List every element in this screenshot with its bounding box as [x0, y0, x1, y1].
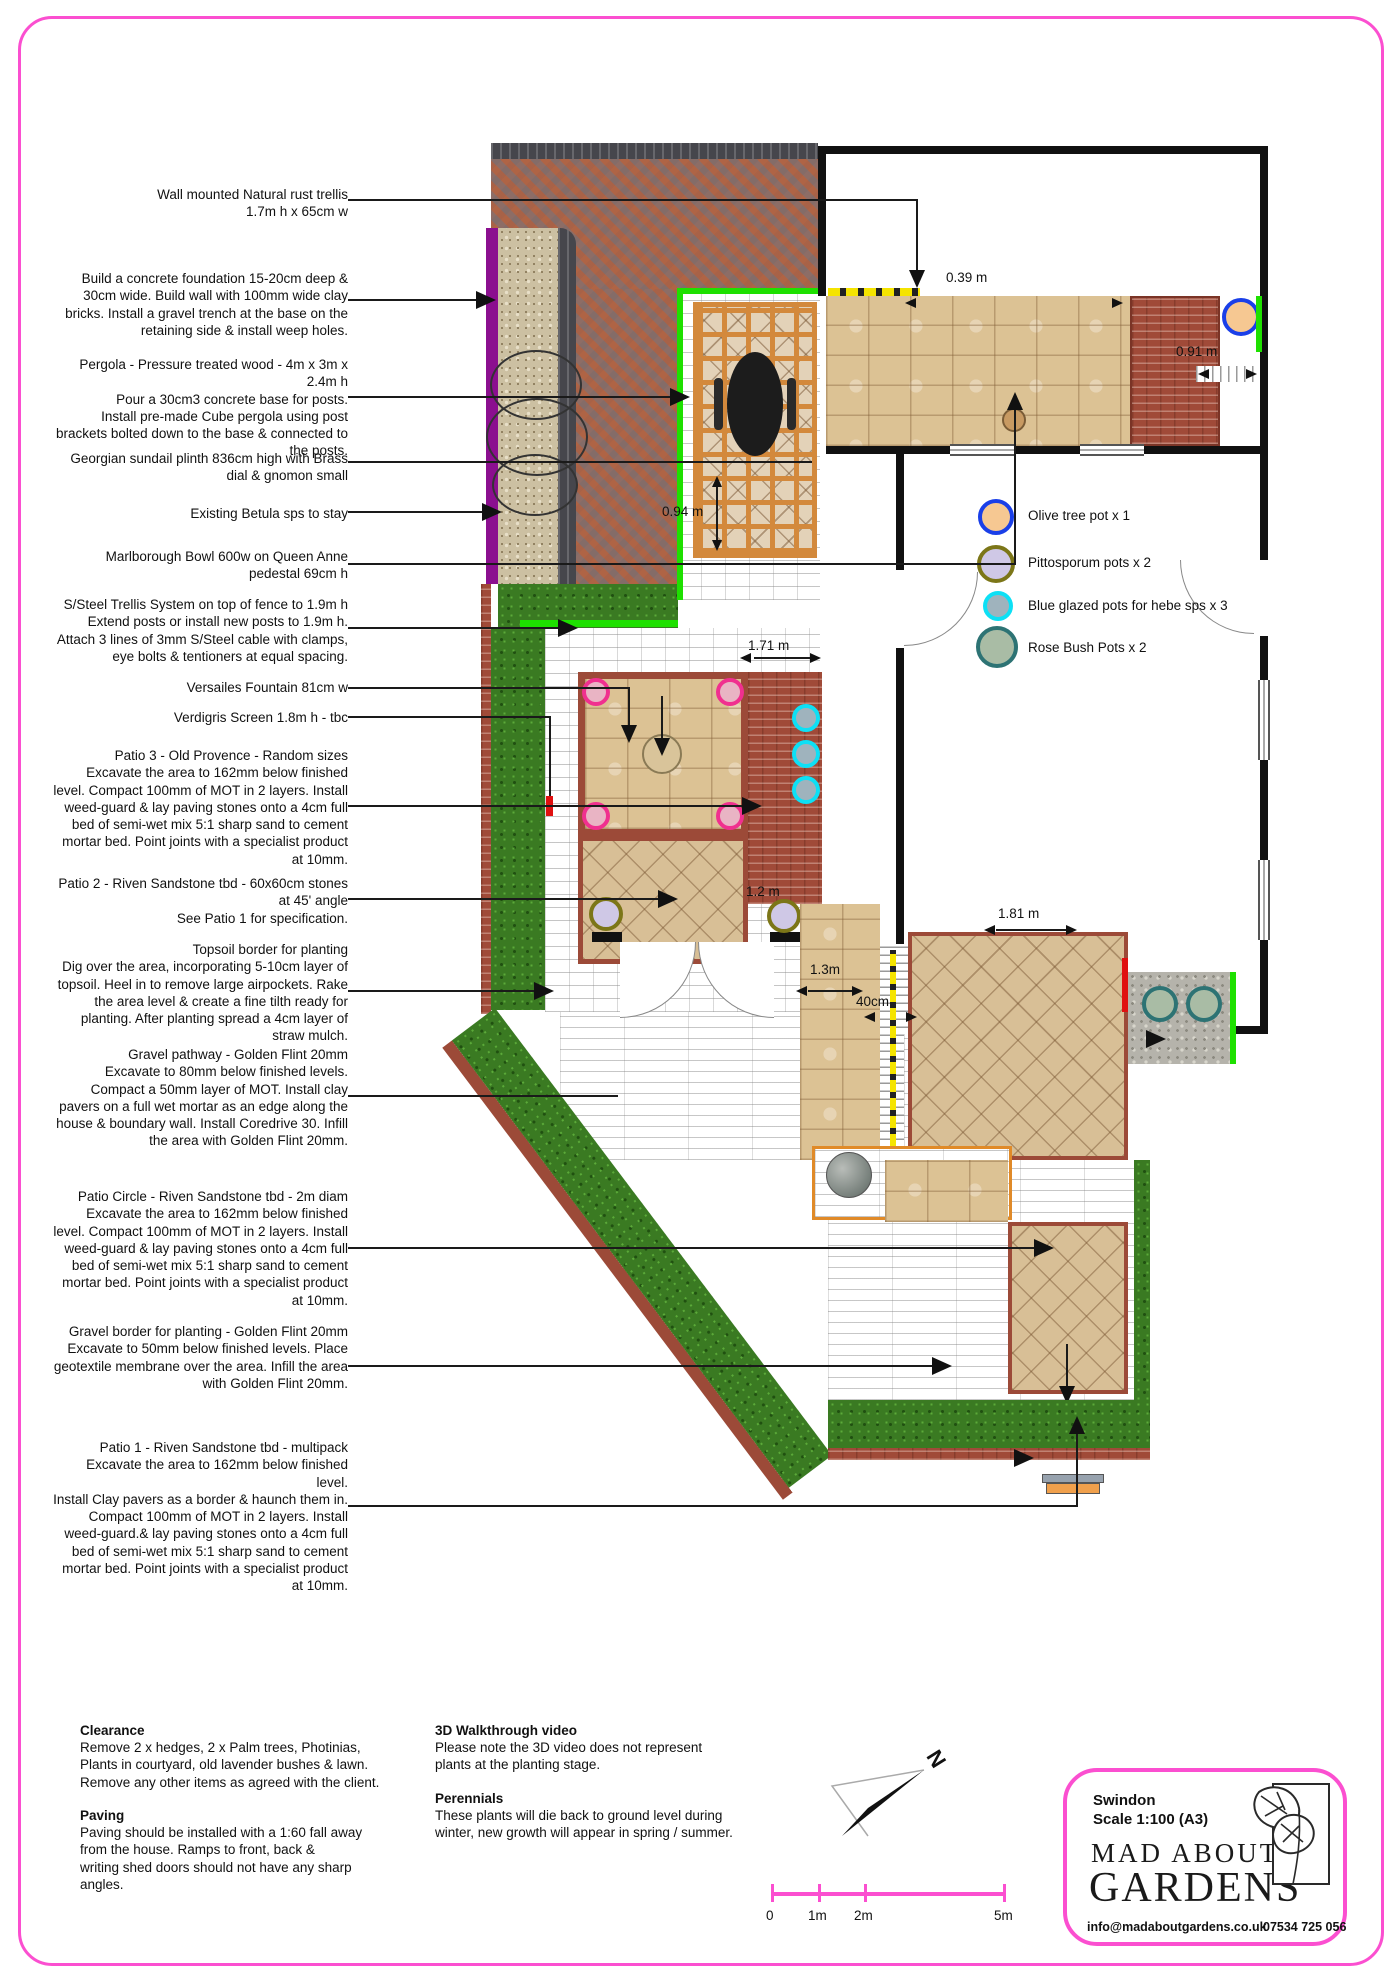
dim-line — [754, 657, 810, 659]
dim-line — [996, 929, 1068, 931]
rose-bush-pot-icon — [976, 626, 1018, 668]
yellow-marker-line — [828, 288, 920, 296]
annotation-marlborough-bowl: Marlborough Bowl 600w on Queen Anne pede… — [52, 548, 348, 583]
garage-wall-left — [818, 146, 826, 296]
note-title: Clearance — [80, 1722, 390, 1739]
hebe-pot — [792, 776, 820, 804]
dim-arrow-left-icon — [905, 298, 916, 308]
patio-circle-area — [908, 932, 1128, 1160]
legend-label: Pittosporum pots x 2 — [1028, 555, 1151, 570]
annotation-steel-trellis: S/Steel Trellis System on top of fence t… — [52, 596, 348, 665]
leader-line — [1066, 1344, 1068, 1388]
leader-line — [1076, 1434, 1078, 1505]
window-icon — [1258, 860, 1270, 940]
dimension-label: 1.3m — [810, 962, 840, 977]
courtyard-patio — [826, 296, 1130, 446]
betula-tree-icon — [492, 454, 578, 516]
annotation-patio-2: Patio 2 - Riven Sandstone tbd - 60x60cm … — [52, 875, 348, 927]
scale-bar — [773, 1892, 1005, 1896]
scale-label: 1m — [808, 1908, 827, 1923]
annotation-wall-trellis: Wall mounted Natural rust trellis 1.7m h… — [52, 186, 348, 221]
sandstone-link — [885, 1160, 1008, 1222]
steel-trellis-line — [520, 620, 678, 627]
dim-arrow-left-icon — [1198, 369, 1209, 379]
arrow-right-icon — [932, 1357, 952, 1375]
note-body: Please note the 3D video does not repres… — [435, 1740, 702, 1772]
arrow-right-icon — [658, 890, 678, 908]
leader-line — [348, 627, 560, 629]
leader-line — [348, 299, 478, 301]
courtyard-wall-bottom — [826, 446, 1268, 454]
leader-line — [549, 716, 551, 798]
arrow-right-icon — [1034, 1239, 1054, 1257]
leader-line — [348, 563, 1016, 565]
yellow-marker-line-v — [890, 950, 896, 1146]
project-location: Swindon — [1093, 1792, 1156, 1809]
arrow-right-icon — [482, 503, 502, 521]
retaining-wall — [486, 228, 498, 584]
contact-phone: 07534 725 056 — [1263, 1920, 1346, 1934]
shed-ramp — [1046, 1483, 1100, 1494]
leader-line — [348, 990, 536, 992]
note-perennials: PerennialsThese plants will die back to … — [435, 1773, 745, 1842]
dim-arrow-down-icon — [712, 540, 722, 551]
door-wall-stub — [770, 932, 804, 942]
dimension-label: 1.71 m — [748, 638, 789, 653]
hebe-pot — [792, 740, 820, 768]
window-icon — [1258, 680, 1270, 760]
garage-wall-top — [818, 146, 1268, 154]
arrow-right-icon — [558, 619, 578, 637]
note-paving: PavingPaving should be installed with a … — [80, 1790, 390, 1893]
fountain-pot — [582, 678, 610, 706]
dim-arrow-up-icon — [712, 476, 722, 487]
boundary-brick-edge-bottom — [828, 1448, 1150, 1460]
note-body: Paving should be installed with a 1:60 f… — [80, 1825, 362, 1891]
leader-line — [348, 199, 918, 201]
annotation-sundial: Georgian sundail plinth 836cm high with … — [52, 450, 348, 485]
legend-label: Olive tree pot x 1 — [1028, 508, 1130, 523]
annotation-gravel-border: Gravel border for planting - Golden Flin… — [52, 1323, 348, 1392]
annotation-gravel-pathway: Gravel pathway - Golden Flint 20mm Excav… — [52, 1046, 348, 1150]
annotation-pergola: Pergola - Pressure treated wood - 4m x 3… — [52, 356, 348, 460]
contact-email: info@madaboutgardens.co.uk — [1087, 1920, 1267, 1934]
dim-arrow-right-icon — [810, 653, 821, 663]
pittosporum-pot — [589, 897, 623, 931]
pergola-green-edge-v — [677, 288, 683, 600]
arrow-down-icon — [654, 738, 670, 756]
dim-arrow-left-icon — [740, 653, 751, 663]
shed-threshold — [1042, 1474, 1104, 1483]
annotation-verdigris-screen: Verdigris Screen 1.8m h - tbc — [52, 709, 348, 726]
leader-line — [348, 1247, 1036, 1249]
hebe-pot-icon — [983, 591, 1013, 621]
leader-line — [348, 1505, 1078, 1507]
monstera-logo-icon — [1247, 1780, 1333, 1892]
note-title: Perennials — [435, 1790, 745, 1807]
annotation-patio-3: Patio 3 - Old Provence - Random sizes Ex… — [52, 747, 348, 868]
door-opening — [896, 570, 904, 648]
leader-line — [628, 687, 630, 727]
sundial-leader — [661, 696, 663, 738]
note-body: These plants will die back to ground lev… — [435, 1808, 733, 1840]
leader-line — [1014, 410, 1016, 565]
scale-tick — [864, 1884, 867, 1902]
arrow-up-icon — [1007, 392, 1023, 410]
dimension-label: 0.91 m — [1176, 344, 1217, 359]
dimension-label: 0.39 m — [946, 270, 987, 285]
hedge-bottom-strip — [828, 1400, 1150, 1448]
scale-label: 2m — [854, 1908, 873, 1923]
driveway-border-course — [491, 143, 818, 159]
window-icon — [950, 444, 1014, 456]
north-arrow-icon — [828, 1748, 938, 1843]
bench-icon — [787, 378, 796, 430]
legend-label: Blue glazed pots for hebe sps x 3 — [1028, 598, 1228, 613]
title-block: Swindon Scale 1:100 (A3) MAD ABOUT GARDE… — [1063, 1768, 1347, 1946]
leader-line — [348, 396, 672, 398]
green-marker-line — [1256, 296, 1262, 352]
scale-tick — [818, 1884, 821, 1902]
leader-line — [348, 805, 744, 807]
scale-label: 0 — [766, 1908, 774, 1923]
leader-line — [348, 687, 630, 689]
arrow-right-icon — [1146, 1030, 1166, 1048]
leader-line — [348, 898, 660, 900]
arrow-right-icon — [670, 388, 690, 406]
legend-label: Rose Bush Pots x 2 — [1028, 640, 1147, 655]
garden-plan-sheet: Olive tree pot x 1 Pittosporum pots x 2 … — [0, 0, 1400, 1980]
dim-arrow-right-icon — [1066, 925, 1077, 935]
door-wall-stub — [592, 932, 622, 942]
hedge-right-strip — [1134, 1160, 1150, 1400]
annotation-patio-circle: Patio Circle - Riven Sandstone tbd - 2m … — [52, 1188, 348, 1309]
leader-line — [348, 1095, 618, 1097]
annotation-topsoil-border: Topsoil border for planting Dig over the… — [52, 941, 348, 1045]
note-title: 3D Walkthrough video — [435, 1722, 745, 1739]
dining-table-icon — [727, 352, 783, 456]
arrow-down-icon — [909, 270, 925, 288]
olive-tree-pot — [1222, 298, 1260, 336]
dim-arrow-right-icon — [1246, 369, 1257, 379]
arrow-right-icon — [534, 982, 554, 1000]
dimension-label: 1.81 m — [998, 906, 1039, 921]
dim-arrow-left-icon — [864, 1012, 875, 1022]
dim-arrow-left-icon — [796, 986, 807, 996]
annotation-patio-1: Patio 1 - Riven Sandstone tbd - multipac… — [52, 1439, 348, 1594]
note-walkthrough: 3D Walkthrough videoPlease note the 3D v… — [435, 1705, 745, 1774]
arrow-right-icon — [1014, 1449, 1034, 1467]
leader-line — [348, 461, 812, 463]
rose-bush-pot — [1186, 986, 1222, 1022]
note-clearance: ClearanceRemove 2 x hedges, 2 x Palm tre… — [80, 1705, 390, 1791]
scale-tick — [771, 1884, 774, 1902]
arrow-right-icon — [476, 291, 496, 309]
boundary-brick-edge — [481, 584, 491, 1014]
arrow-down-icon — [621, 725, 637, 743]
drawing-scale: Scale 1:100 (A3) — [1093, 1811, 1208, 1828]
bench-icon — [714, 378, 723, 430]
dimension-label: 40cm — [856, 994, 889, 1009]
scale-label: 5m — [994, 1908, 1013, 1923]
note-body: Remove 2 x hedges, 2 x Palm trees, Photi… — [80, 1740, 379, 1789]
green-marker-line — [1230, 972, 1236, 1064]
arrow-right-icon — [742, 797, 762, 815]
dim-arrow-left-icon — [984, 925, 995, 935]
dimension-label: 0.94 m — [662, 504, 703, 519]
window-icon — [1080, 444, 1144, 456]
pergola-green-edge-h — [677, 288, 820, 294]
leader-line — [916, 199, 918, 273]
fountain-pot — [716, 678, 744, 706]
dim-line — [808, 990, 854, 992]
arrow-up-icon — [1069, 1416, 1085, 1434]
scale-tick — [1003, 1884, 1006, 1902]
pittosporum-pot — [767, 899, 801, 933]
dim-line — [716, 482, 718, 542]
note-title: Paving — [80, 1807, 390, 1824]
dim-arrow-right-icon — [1112, 298, 1123, 308]
annotation-versailles-fountain: Versailes Fountain 81cm w — [52, 679, 348, 696]
annotation-betula: Existing Betula sps to stay — [52, 505, 348, 522]
olive-tree-pot-icon — [978, 499, 1014, 535]
dimension-label: 1.2 m — [746, 884, 780, 899]
sandstone-path — [800, 904, 880, 1160]
leader-line — [348, 716, 550, 718]
annotation-foundation: Build a concrete foundation 15-20cm deep… — [52, 270, 348, 339]
rose-bush-pot — [1142, 986, 1178, 1022]
hedge-left-strip — [491, 628, 545, 1010]
hebe-pot — [792, 704, 820, 732]
dim-arrow-right-icon — [906, 1012, 917, 1022]
door-opening — [1260, 560, 1268, 636]
leader-line — [348, 511, 486, 513]
boulder-icon — [826, 1152, 872, 1198]
leader-line — [348, 1365, 934, 1367]
